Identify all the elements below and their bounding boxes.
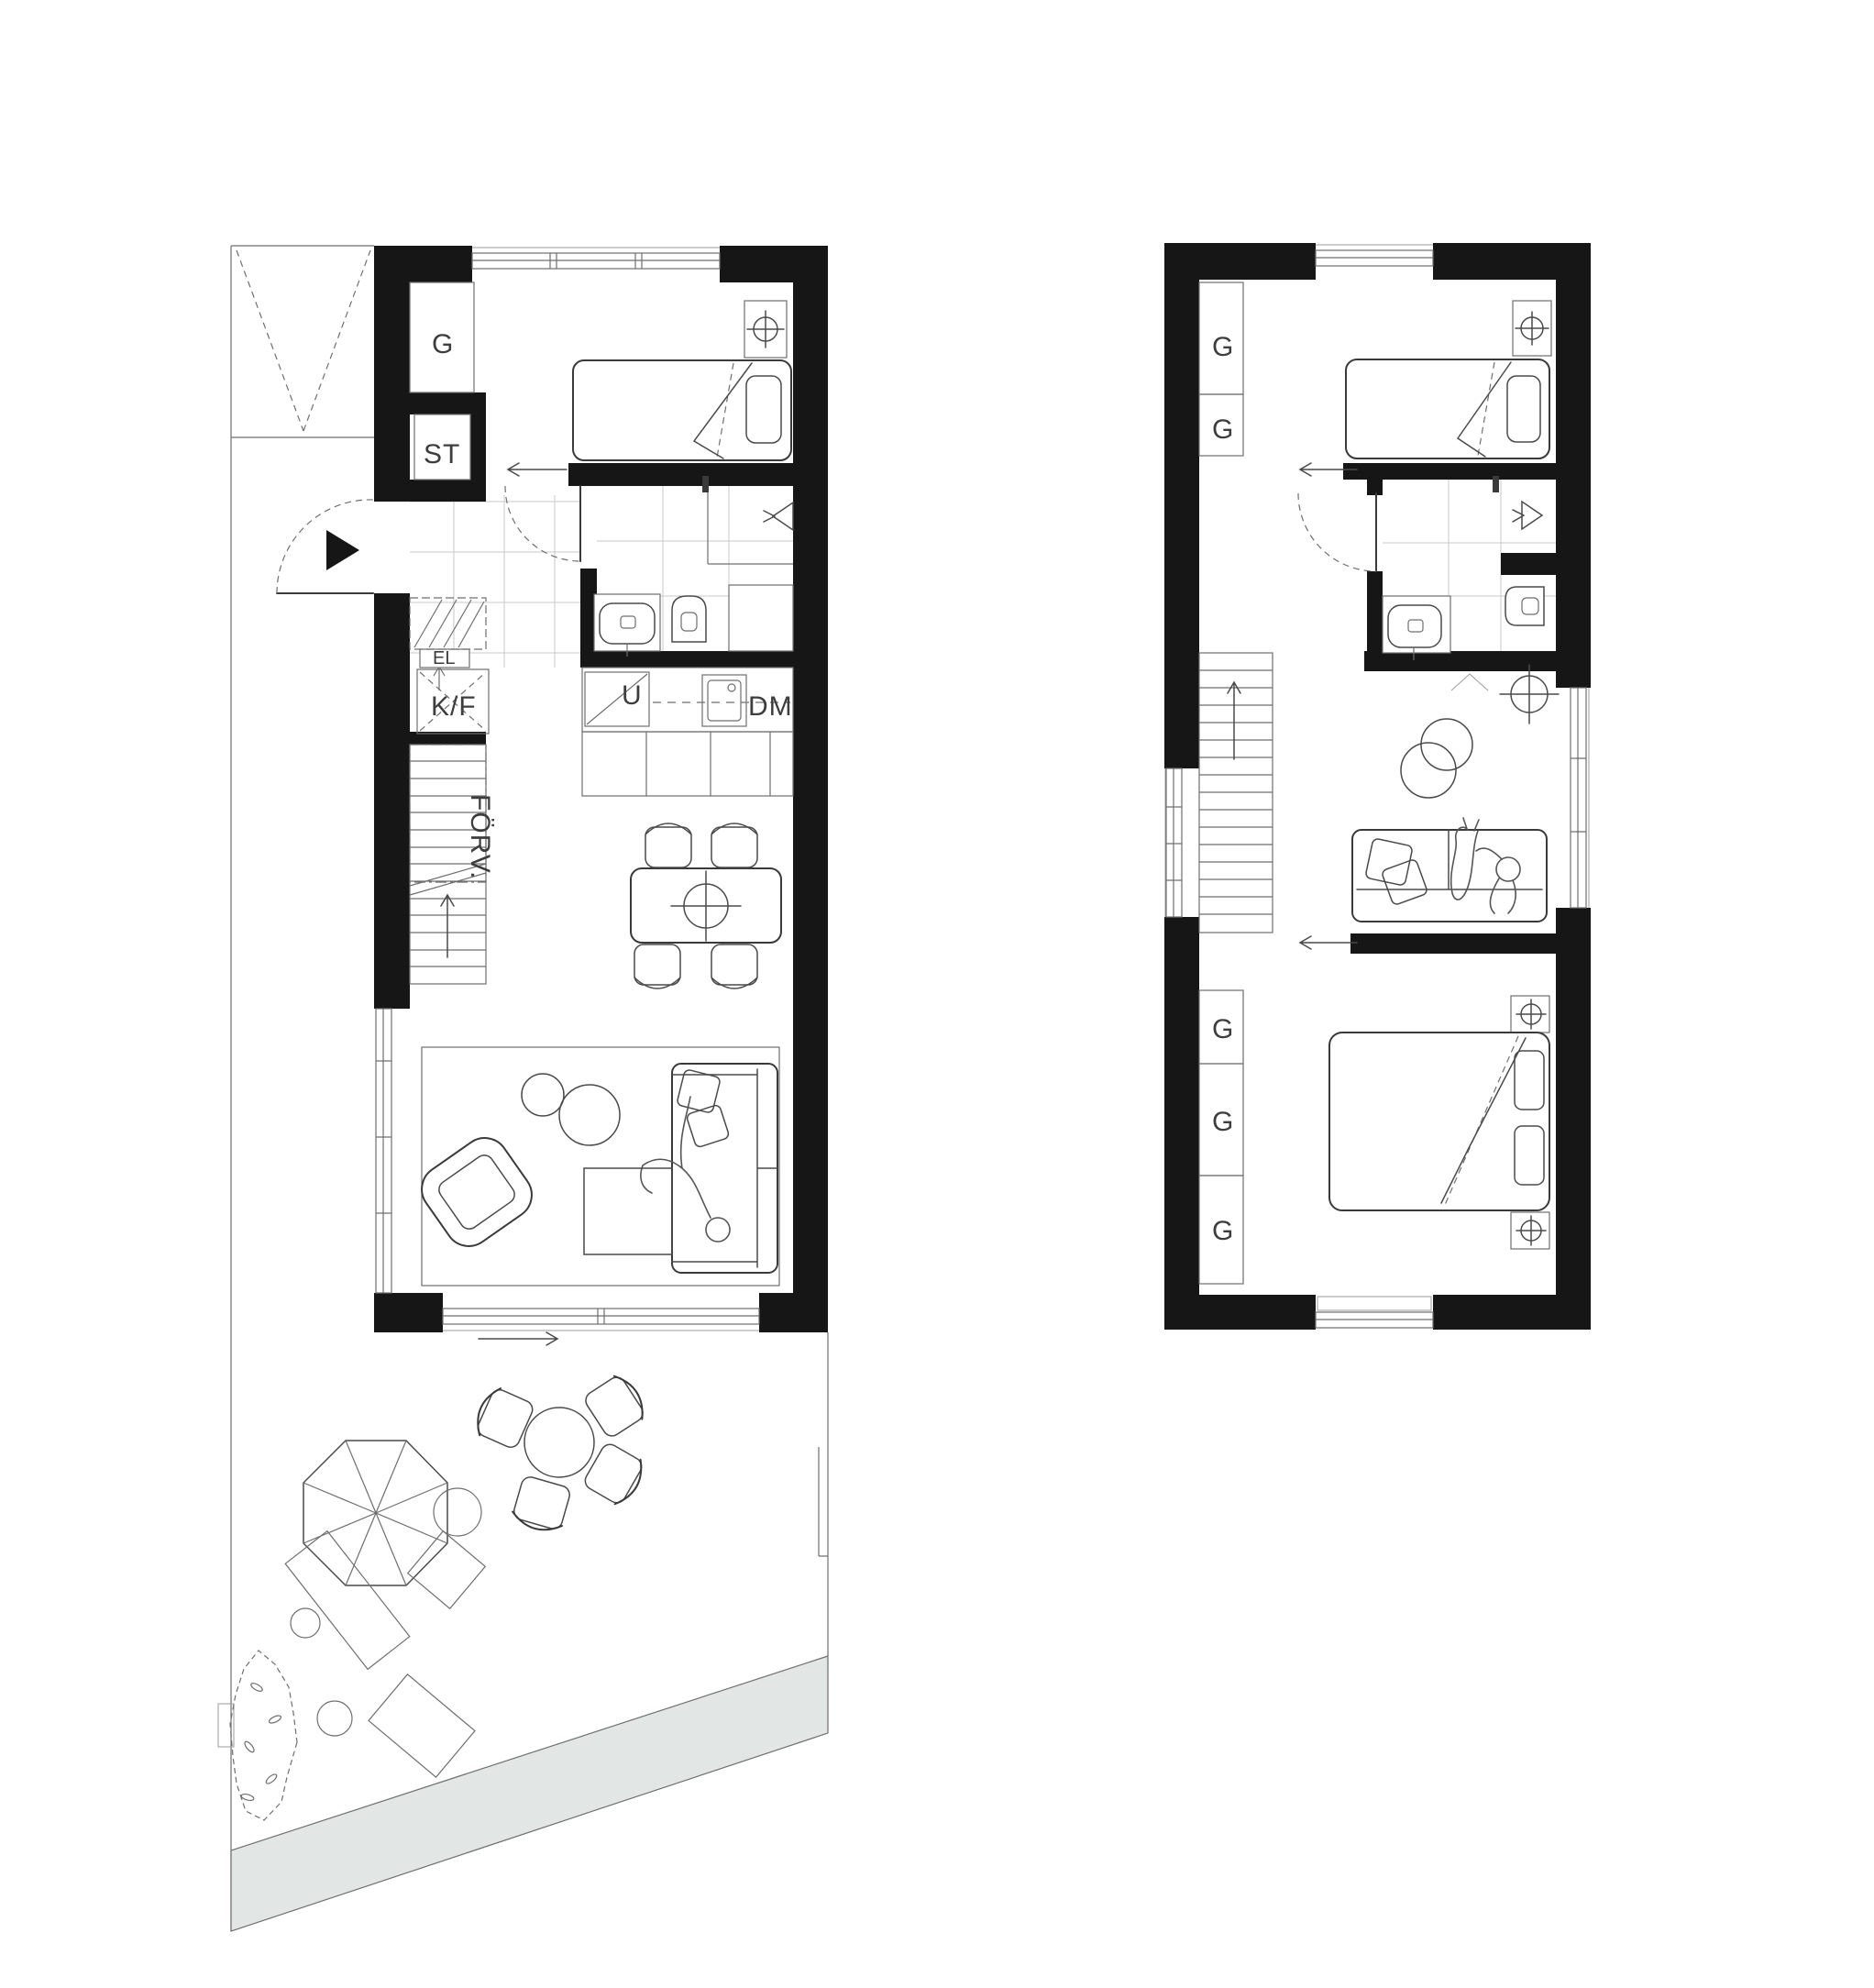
ceiling-light-icon — [1516, 1216, 1546, 1245]
passage-arrow-icon — [508, 463, 567, 476]
floor-cushion — [584, 1168, 672, 1254]
side-table — [1421, 719, 1472, 770]
dining-chair — [634, 944, 680, 988]
floor-drain-icon — [764, 503, 793, 530]
bedroom-2: G G — [1199, 282, 1551, 476]
cleaning-closet: ST — [414, 414, 470, 480]
wardrobe-label: G — [432, 329, 454, 359]
sofa — [672, 1064, 777, 1273]
dining-chair — [711, 944, 757, 988]
coffee-table — [522, 1074, 564, 1116]
dining-chair — [645, 823, 691, 867]
kitchen-island — [582, 732, 793, 796]
wardrobe-label: G — [1212, 1216, 1234, 1246]
single-bed — [1346, 359, 1549, 458]
rug — [422, 1047, 779, 1286]
pillow — [1515, 1126, 1544, 1185]
seat-pad — [369, 1674, 475, 1777]
dining-area — [631, 823, 781, 988]
dining-chair — [711, 823, 757, 867]
person-sitting-with-dog — [1451, 818, 1520, 913]
shaft-hatch — [410, 598, 486, 649]
stair-up-arrow-icon — [441, 895, 454, 957]
toilet — [672, 596, 706, 642]
ground-floor-plan: G ST — [277, 246, 828, 1345]
coffee-table — [559, 1085, 620, 1145]
bedroom — [508, 301, 791, 476]
storage-label: FÖRV. — [465, 794, 495, 879]
wardrobe-closet: G — [410, 282, 474, 392]
duvet-fold — [1458, 362, 1511, 457]
wardrobe-label: G — [1212, 414, 1234, 445]
windows — [1165, 245, 1589, 1328]
pillow — [1507, 376, 1540, 442]
floor-plan-canvas: G ST — [0, 0, 1874, 1988]
upper-floor-plan: G G — [1164, 243, 1591, 1330]
washbasin — [1383, 596, 1450, 660]
entrance-door — [277, 500, 373, 593]
staircase: FÖRV. — [410, 745, 495, 984]
driveway-marker — [237, 250, 370, 431]
electrical-cabinet: EL — [420, 648, 469, 668]
garden-ball — [291, 1608, 320, 1638]
fridge-freezer: K/F — [417, 667, 489, 734]
tv-lounge — [1300, 665, 1559, 949]
sun-lounger — [285, 1531, 410, 1670]
wardrobe-label: G — [1212, 1107, 1234, 1137]
pillow — [1515, 1051, 1544, 1110]
outdoor-dining-set — [470, 1371, 650, 1536]
bathroom — [505, 476, 793, 657]
stair-up-arrow-icon — [1228, 682, 1240, 759]
parasol-icon — [303, 1441, 481, 1585]
sliding-door-arrow-icon — [479, 1332, 557, 1345]
walls — [1164, 243, 1591, 1330]
electrical-label: EL — [433, 648, 455, 668]
hall-tiles — [410, 495, 580, 668]
wardrobe-label: G — [1212, 332, 1234, 362]
toilet — [1505, 587, 1544, 625]
kitchen-sink — [702, 675, 746, 726]
wardrobe-label: G — [1212, 1014, 1234, 1044]
staircase — [1199, 653, 1273, 933]
living-room — [413, 1047, 779, 1286]
double-bed — [1329, 1033, 1549, 1210]
ceiling-light-icon — [1516, 312, 1549, 345]
duvet-fold — [694, 363, 752, 458]
appliance-space — [729, 585, 793, 651]
passage-arrow-icon — [1300, 936, 1357, 949]
door-swing — [505, 486, 580, 561]
person-lying — [641, 1097, 730, 1242]
duvet-fold — [1441, 1038, 1526, 1203]
pillow — [746, 376, 781, 443]
washbasin — [594, 594, 660, 657]
floor-drain-icon — [1513, 502, 1542, 529]
armchair — [413, 1129, 541, 1255]
walkway-path — [231, 1656, 828, 1931]
cleaning-closet-label: ST — [424, 439, 460, 469]
fridge-freezer-label: K/F — [431, 691, 477, 722]
oven-label: U — [622, 680, 643, 711]
shower-mixer — [1493, 476, 1499, 492]
door-swing — [1298, 493, 1376, 571]
walls — [374, 246, 828, 1332]
floor-plan-svg: G ST — [0, 0, 1874, 1988]
ceiling-light-icon — [1516, 1000, 1546, 1029]
pendant-light-icon — [1500, 665, 1559, 723]
oven: U — [585, 672, 649, 726]
dishwasher-label: DM — [748, 691, 793, 722]
master-bedroom: G G G — [1199, 990, 1549, 1284]
garden-ball — [317, 1701, 352, 1736]
pendant-light-icon — [671, 871, 741, 941]
ceiling-light-icon — [747, 311, 784, 348]
bush — [230, 1651, 297, 1820]
shower-mixer — [702, 476, 709, 492]
entrance-icon — [326, 530, 359, 570]
